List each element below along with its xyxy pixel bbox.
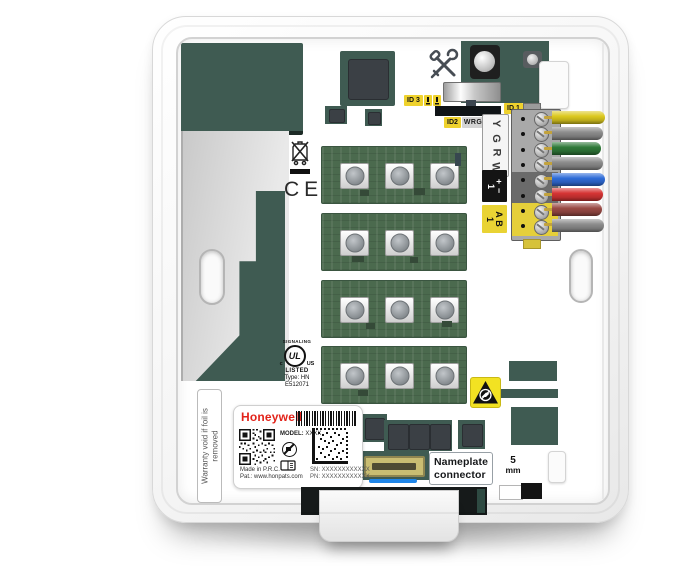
case-clip-bottom-right [548, 451, 566, 483]
ic-chip [430, 424, 451, 450]
tact-button[interactable] [430, 363, 459, 389]
barcode [296, 411, 356, 426]
reset-button-cap [474, 51, 495, 72]
button-cap [435, 234, 454, 253]
screw-terminal[interactable] [534, 189, 549, 204]
tact-button[interactable] [340, 363, 369, 389]
data-matrix-code [312, 428, 348, 464]
terminal-plus: + [494, 179, 503, 184]
callout-line1: Nameplate [434, 456, 488, 469]
pcb-strip [321, 213, 467, 271]
wire-entry [521, 132, 525, 136]
wire-entry [521, 178, 525, 182]
button-cap [345, 234, 364, 253]
pcb-patch-right-2 [501, 389, 558, 398]
pcb-patch-right-1 [509, 361, 557, 381]
button-cap [435, 301, 454, 320]
ul-file-number: E512071 [274, 382, 320, 388]
wire-entry [521, 209, 525, 213]
callout-line2: connector [434, 469, 488, 482]
tact-button[interactable] [430, 163, 459, 189]
button-cap [345, 167, 364, 186]
ic-chip [329, 109, 345, 123]
id3-label: ID 3 [404, 95, 423, 106]
no-dispose-icon [282, 442, 297, 457]
highlight-underline [369, 479, 417, 483]
button-cap [435, 167, 454, 186]
smd-component [366, 323, 375, 329]
pcb-patch-chip-row [384, 420, 452, 451]
ul-type: Type: HN [274, 375, 320, 381]
thermostat-wire [552, 157, 603, 170]
button-cap [390, 234, 409, 253]
scale-bar-white [499, 485, 523, 500]
terminal-letters-label: Y G R W [482, 114, 509, 177]
mounting-hole-left [199, 249, 225, 305]
terminal-letter: Y [491, 120, 500, 127]
screw-terminal[interactable] [534, 112, 549, 127]
terminal-power-label: 1 + − [482, 170, 507, 202]
tact-button[interactable] [385, 230, 414, 256]
smd-component [358, 390, 368, 396]
smd-component [410, 257, 418, 263]
bottom-release-tab[interactable] [319, 490, 459, 542]
wire-entry [521, 117, 525, 121]
thermostat-wire [552, 111, 605, 124]
part-number: PN: XXXXXXXXXXXX [310, 474, 370, 481]
pcb-patch-right-3 [511, 407, 558, 445]
weee-bar [290, 169, 310, 174]
tact-button[interactable] [385, 163, 414, 189]
tact-button[interactable] [340, 297, 369, 323]
terminal-block-tab-bottom [523, 239, 541, 249]
product-illustration: Warranty void if foil is removed [0, 0, 679, 582]
terminal-letter: R [491, 149, 500, 157]
ic-chip [462, 424, 483, 447]
mounting-hole-right [569, 249, 593, 303]
button-cap [435, 367, 454, 386]
ic-chip [388, 424, 409, 450]
pcb-shield-top-left [181, 43, 303, 135]
warranty-text: Warranty void if foil is removed [200, 393, 219, 499]
pcb-patch-chip-2 [458, 420, 485, 449]
device-interior: Warranty void if foil is removed [176, 37, 610, 505]
screw-terminal[interactable] [534, 127, 549, 142]
connector-slot [372, 463, 416, 470]
ul-us: US [307, 361, 315, 367]
screw-terminal[interactable] [534, 143, 549, 158]
weee-icon [289, 139, 311, 167]
thermostat-wire [552, 219, 604, 232]
nameplate-connector-callout: Nameplate connector [429, 452, 493, 485]
pcb-strip [321, 280, 467, 338]
button-cap [390, 301, 409, 320]
wire-entry [521, 194, 525, 198]
patent-text: Pat.: www.honpats.com [240, 474, 303, 481]
reset-button[interactable] [470, 45, 500, 79]
tact-button[interactable] [430, 230, 459, 256]
tact-button[interactable] [340, 230, 369, 256]
esd-warning-icon [470, 377, 501, 408]
pcb-patch-top-center [340, 51, 395, 106]
scale-label: 5 mm [503, 456, 523, 475]
tools-icon [426, 47, 462, 83]
display-connector [443, 82, 501, 102]
button-cap [390, 167, 409, 186]
button-cap [345, 301, 364, 320]
made-in-text: Made in P.R.C. [240, 467, 280, 474]
thermostat-wire [552, 142, 601, 155]
pcb-patch-small-1 [325, 106, 347, 124]
terminal-a: A [494, 211, 503, 218]
thermostat-wire [552, 127, 603, 140]
wire-entry [521, 163, 525, 167]
terminal-letter: G [491, 134, 500, 143]
qr-code [239, 429, 275, 465]
terminal-bus-label: 1 A B [482, 205, 507, 233]
product-label: Honeywell [233, 405, 363, 489]
pcb-strip [321, 146, 467, 204]
thermostat-wire [552, 188, 603, 201]
case-clip [539, 61, 569, 109]
wire-entry [521, 224, 525, 228]
tact-button[interactable] [430, 297, 459, 323]
device-back-housing: Warranty void if foil is removed [152, 16, 629, 523]
jumper-icon [424, 95, 432, 106]
serial-number: SN: XXXXXXXXXXXX [310, 467, 370, 474]
pcb-patch-small-2 [365, 109, 382, 126]
jumper-icon [433, 95, 441, 106]
thermostat-wire [552, 203, 602, 216]
small-button-cap [527, 54, 538, 65]
button-cap [345, 367, 364, 386]
screw-terminal[interactable] [534, 158, 549, 173]
warranty-foil-strip: Warranty void if foil is removed [197, 389, 222, 503]
brand-logo: Honeywell [241, 411, 302, 423]
smd-component [352, 256, 364, 262]
terminal-b: B [494, 220, 503, 227]
button-cap [390, 367, 409, 386]
model-label: MODEL: [280, 431, 304, 437]
thermostat-wire [552, 173, 605, 186]
smd-component [414, 188, 425, 195]
id2-label: ID2 [444, 117, 461, 128]
ul-signaling-text: SIGNALING [274, 339, 320, 344]
manual-icon [280, 460, 296, 471]
tact-button[interactable] [385, 297, 414, 323]
ic-chip [368, 112, 381, 125]
scale-unit: mm [503, 466, 523, 475]
terminal-minus: − [494, 188, 503, 193]
smd-component [455, 153, 461, 166]
pcb-edge-sliver [477, 489, 485, 513]
ce-mark: CE [284, 179, 323, 200]
ic-chip [348, 59, 389, 100]
smd-component [360, 190, 369, 196]
ul-mark: UL [284, 345, 306, 367]
pcb-strip [321, 346, 467, 404]
ul-listing-block: SIGNALING c UL US LISTED Type: HN E51207… [274, 339, 320, 388]
tact-button[interactable] [385, 363, 414, 389]
scale-bar-black [521, 483, 542, 499]
ic-chip [365, 418, 385, 440]
tact-button[interactable] [340, 163, 369, 189]
id3-label-row: ID 3 [404, 95, 441, 106]
ic-chip [409, 424, 430, 450]
ul-listed-text: LISTED [274, 368, 320, 374]
connector-socket [364, 456, 425, 477]
ul-c: c [280, 361, 283, 367]
wire-entry [521, 148, 525, 152]
smd-component [442, 321, 452, 327]
